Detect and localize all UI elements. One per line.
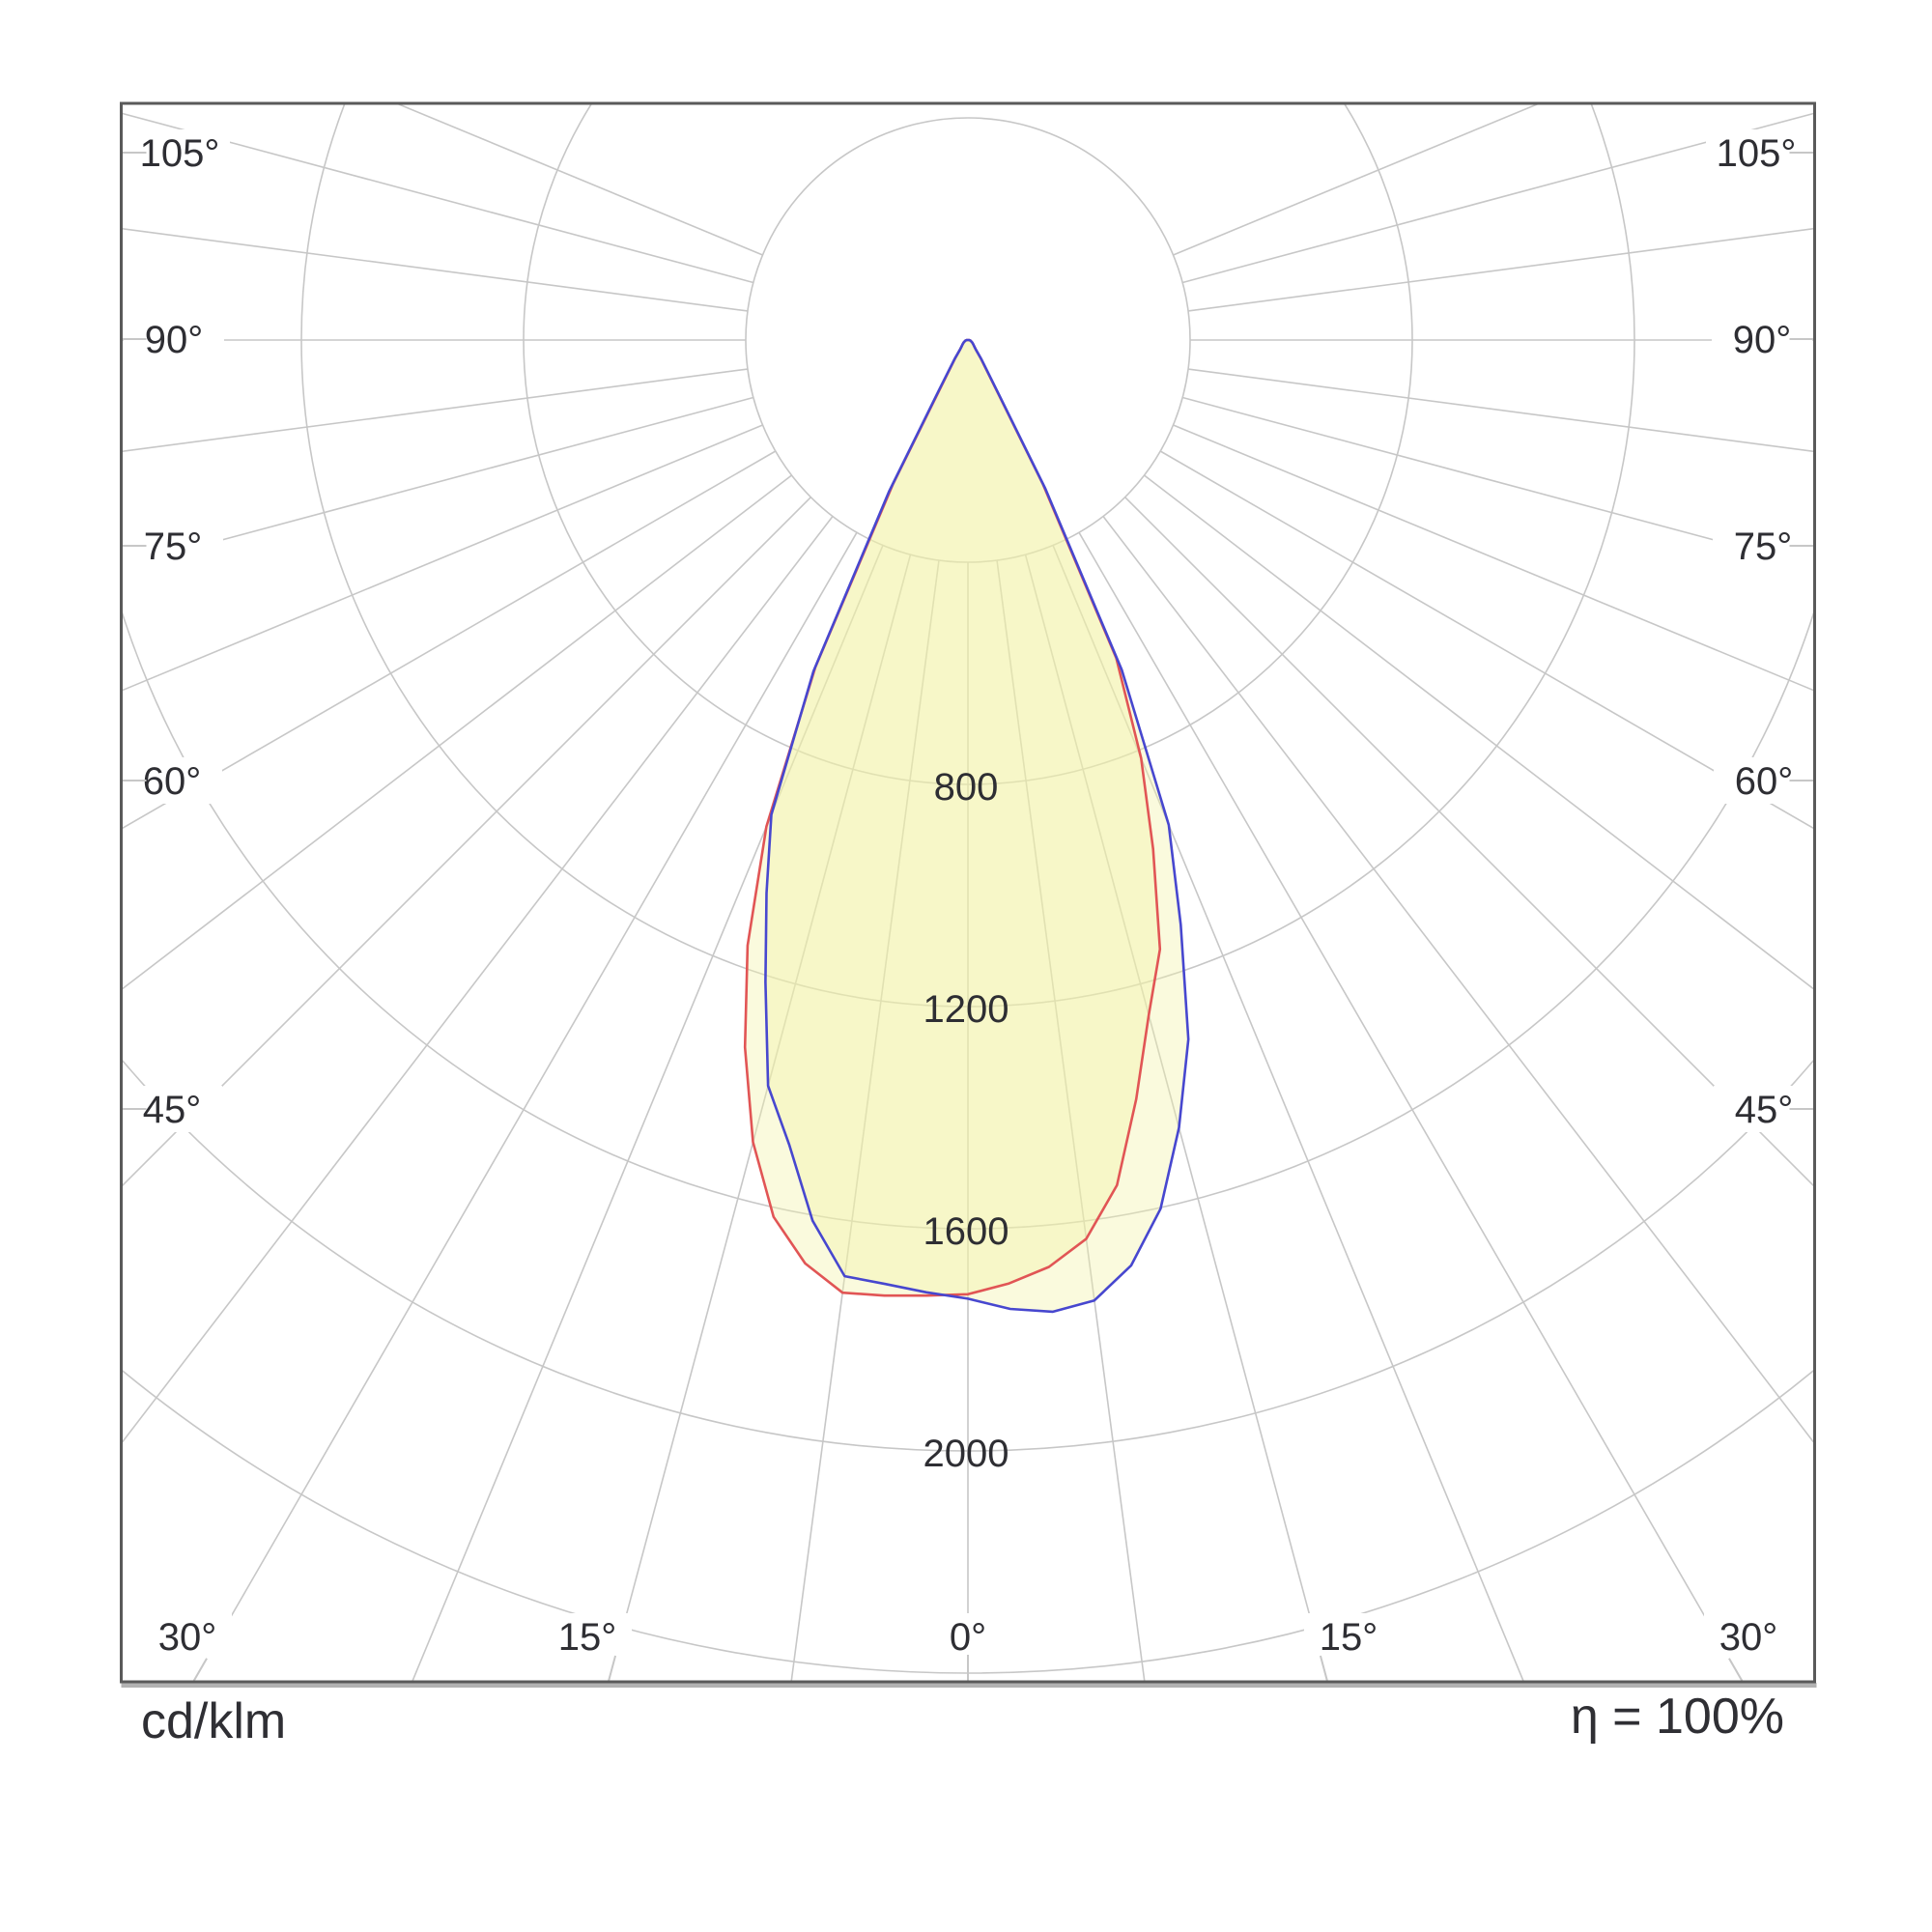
light-output-ratio-label: η = 100% [1571,1688,1784,1746]
svg-text:75°: 75° [1734,526,1793,568]
svg-text:105°: 105° [140,132,220,175]
legend: C0 - C180 C90 - C270 [0,1753,1932,1802]
svg-text:60°: 60° [143,760,202,803]
ring-label-1600: 1600 [923,1210,1009,1253]
svg-text:15°: 15° [1320,1616,1378,1659]
svg-text:0°: 0° [950,1616,986,1659]
svg-text:30°: 30° [158,1616,217,1659]
svg-text:90°: 90° [1733,319,1792,361]
svg-text:45°: 45° [1735,1089,1794,1131]
svg-text:90°: 90° [145,319,204,361]
polar-intensity-chart: 105°105°90°90°75°75°60°60°45°45°30°15°0°… [0,0,1932,1932]
svg-text:15°: 15° [558,1616,617,1659]
units-label: cd/klm [141,1692,286,1750]
svg-text:45°: 45° [143,1089,202,1131]
svg-text:75°: 75° [144,526,203,568]
svg-text:105°: 105° [1717,132,1797,175]
svg-text:30°: 30° [1719,1616,1778,1659]
ring-label-800: 800 [934,766,999,809]
photometric-diagram-page: 105°105°90°90°75°75°60°60°45°45°30°15°0°… [0,0,1932,1932]
ring-label-2000: 2000 [923,1433,1009,1475]
svg-text:60°: 60° [1735,760,1794,803]
ring-label-1200: 1200 [923,988,1009,1031]
